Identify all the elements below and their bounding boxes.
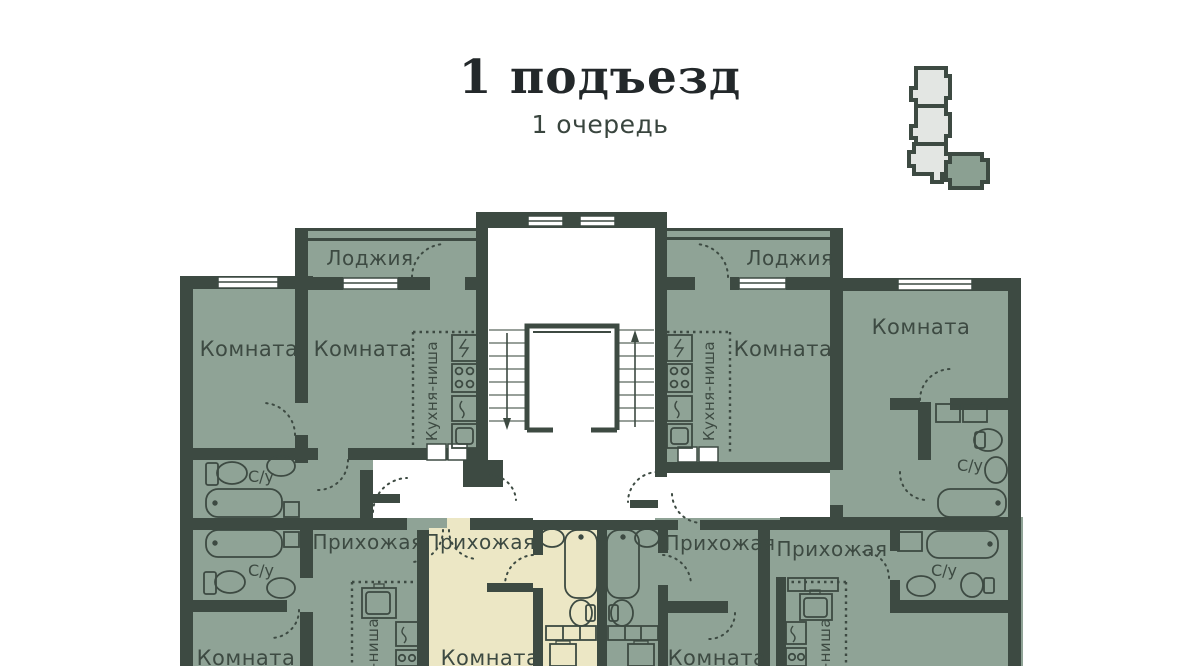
window-far-right (898, 279, 972, 290)
label-bath-left-lower: С/у (248, 561, 274, 580)
label-room-bc: Комната (668, 646, 767, 666)
label-hall-br: Прихожая (776, 537, 887, 561)
label-bath-right-upper: С/у (957, 456, 983, 475)
label-bath-left-upper: С/у (248, 467, 274, 486)
window-stair-1 (528, 216, 563, 226)
floorplan-page: 1 подъезд 1 очередь (0, 0, 1200, 666)
window-top-left (218, 277, 278, 288)
label-kitchen-tl: Кухня-ниша (423, 341, 441, 441)
label-hall-bl: Прихожая (312, 530, 423, 554)
label-room-tl2: Комната (314, 337, 413, 361)
floor-plan: Лоджия Лоджия Комната Комната Комната Ко… (0, 0, 1200, 666)
window-sill-left (343, 278, 398, 289)
label-kitchen-tr: Кухня-ниша (700, 341, 718, 441)
label-hall-bc: Прихожая (664, 531, 775, 555)
label-hall-yellow: Прихожая (424, 530, 535, 554)
label-loggia-left: Лоджия (326, 246, 413, 270)
window-sill-right (739, 278, 786, 289)
label-room-bl: Комната (197, 646, 296, 666)
label-room-tr: Комната (734, 337, 833, 361)
label-kitchen-bl: Кухня-ниша (364, 618, 382, 666)
label-room-far-right: Комната (872, 315, 971, 339)
window-stair-2 (580, 216, 615, 226)
label-bath-right-lower: С/у (931, 561, 957, 580)
label-kitchen-br: Кухня-ниша (816, 618, 834, 666)
label-room-tl1: Комната (200, 337, 299, 361)
label-loggia-right: Лоджия (746, 246, 833, 270)
label-room-yellow: Комната (441, 646, 540, 666)
